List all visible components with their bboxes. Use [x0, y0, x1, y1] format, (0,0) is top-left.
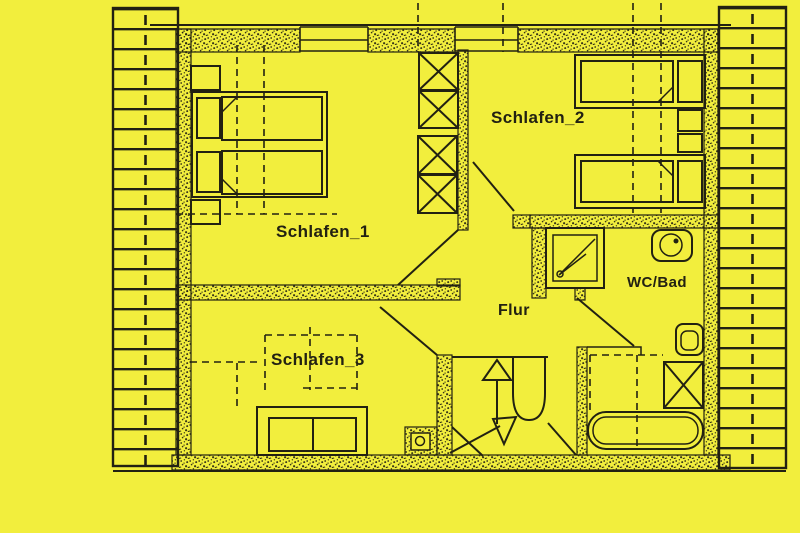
- pillow: [678, 161, 702, 202]
- single-bed-1: [575, 55, 705, 108]
- floor-plan: Schlafen_1 Schlafen_2 Schlafen_3 Flur WC…: [0, 0, 800, 533]
- room-label-flur: Flur: [498, 302, 530, 320]
- sofa-bed: [257, 407, 367, 455]
- duct-box: [405, 427, 437, 455]
- window-top-right: [455, 27, 518, 51]
- door-schlafen3: [380, 307, 437, 355]
- pillow: [678, 61, 702, 102]
- bath-roof-dashes: [590, 355, 663, 449]
- door-schlafen2: [473, 162, 514, 211]
- right-roof-hatch: [719, 7, 786, 468]
- schlafen1-roof-dashes: [176, 45, 337, 214]
- room-label-schlafen3: Schlafen_3: [271, 350, 365, 370]
- shower: [546, 228, 604, 288]
- left-roof-hatch: [113, 8, 178, 466]
- stair-arrow-up: [483, 360, 511, 424]
- room-label-schlafen1: Schlafen_1: [276, 222, 370, 242]
- bathtub: [588, 412, 703, 449]
- door-wc-bad: [577, 298, 634, 346]
- bedside-shelves: [678, 110, 702, 152]
- mattress: [581, 161, 673, 202]
- mattress: [581, 61, 673, 102]
- pillow: [197, 152, 220, 192]
- sink: [652, 230, 692, 261]
- blanket-fold: [222, 179, 237, 194]
- nightstand: [191, 200, 220, 224]
- toilet: [676, 324, 703, 355]
- bath-cabinet: [664, 362, 703, 408]
- pillow: [197, 98, 220, 138]
- blanket-fold: [222, 97, 237, 112]
- double-bed: [191, 66, 327, 224]
- room-label-wc-bad: WC/Bad: [627, 274, 687, 291]
- floor-plan-drawing: [0, 0, 800, 533]
- nightstand: [191, 66, 220, 90]
- door-schlafen1: [398, 230, 458, 285]
- window-top-left: [300, 27, 368, 51]
- single-bed-2: [575, 155, 705, 208]
- wardrobe: [418, 53, 458, 213]
- room-label-schlafen2: Schlafen_2: [491, 108, 585, 128]
